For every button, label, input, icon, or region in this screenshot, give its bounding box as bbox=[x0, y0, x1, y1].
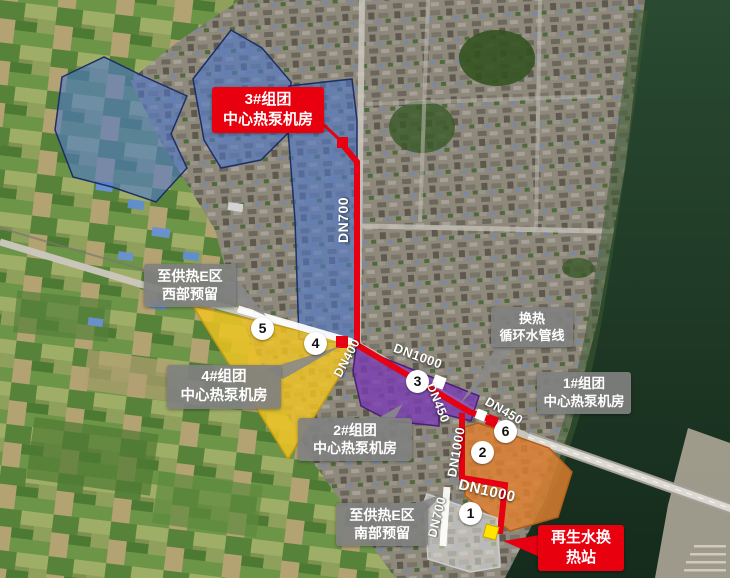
callout-station1: 1#组团 中心热泵机房 bbox=[537, 372, 631, 414]
callout-exchange-loop-line2: 循环水管线 bbox=[496, 327, 568, 344]
callout-south-reserve-line2: 南部预留 bbox=[341, 524, 423, 542]
node-3: 3 bbox=[406, 370, 429, 393]
callout-station2-line1: 2#组团 bbox=[303, 421, 407, 439]
callout-station4-line1: 4#组团 bbox=[172, 368, 276, 387]
callout-south-reserve: 至供热E区 南部预留 bbox=[336, 503, 428, 546]
node-1: 1 bbox=[459, 502, 482, 525]
callout-west-reserve: 至供热E区 西部预留 bbox=[144, 264, 236, 307]
regen-station-marker bbox=[483, 524, 499, 540]
heating-network-map: DN700 DN400 DN1000 DN450 DN450 DN1000 DN… bbox=[0, 0, 730, 578]
callout-regen-station-line1: 再生水换 bbox=[543, 528, 619, 548]
park-green bbox=[459, 30, 535, 86]
callout-station4: 4#组团 中心热泵机房 bbox=[167, 365, 281, 409]
callout-station3-line2: 中心热泵机房 bbox=[217, 110, 319, 130]
callout-west-reserve-line1: 至供热E区 bbox=[149, 267, 231, 285]
callout-station3: 3#组团 中心热泵机房 bbox=[212, 87, 324, 133]
trees bbox=[562, 258, 594, 278]
callout-regen-station-line2: 热站 bbox=[543, 548, 619, 568]
callout-station2: 2#组团 中心热泵机房 bbox=[298, 418, 412, 461]
callout-exchange-loop: 换热 循环水管线 bbox=[491, 307, 573, 347]
node-2: 2 bbox=[471, 441, 494, 464]
callout-station3-line1: 3#组团 bbox=[217, 90, 319, 110]
station3-marker bbox=[337, 137, 348, 148]
pipe-label-dn700-north: DN700 bbox=[335, 197, 351, 243]
callout-station4-line2: 中心热泵机房 bbox=[172, 387, 276, 406]
callout-station1-line1: 1#组团 bbox=[542, 375, 626, 393]
callout-south-reserve-line1: 至供热E区 bbox=[341, 506, 423, 524]
callout-station1-line2: 中心热泵机房 bbox=[542, 393, 626, 411]
map-canvas bbox=[0, 0, 730, 578]
callout-regen-station: 再生水换 热站 bbox=[538, 525, 624, 571]
node-6: 6 bbox=[494, 420, 517, 443]
callout-exchange-loop-line1: 换热 bbox=[496, 310, 568, 327]
callout-station2-line2: 中心热泵机房 bbox=[303, 439, 407, 457]
callout-west-reserve-line2: 西部预留 bbox=[149, 285, 231, 303]
node-5: 5 bbox=[251, 317, 274, 340]
node-4: 4 bbox=[304, 332, 327, 355]
